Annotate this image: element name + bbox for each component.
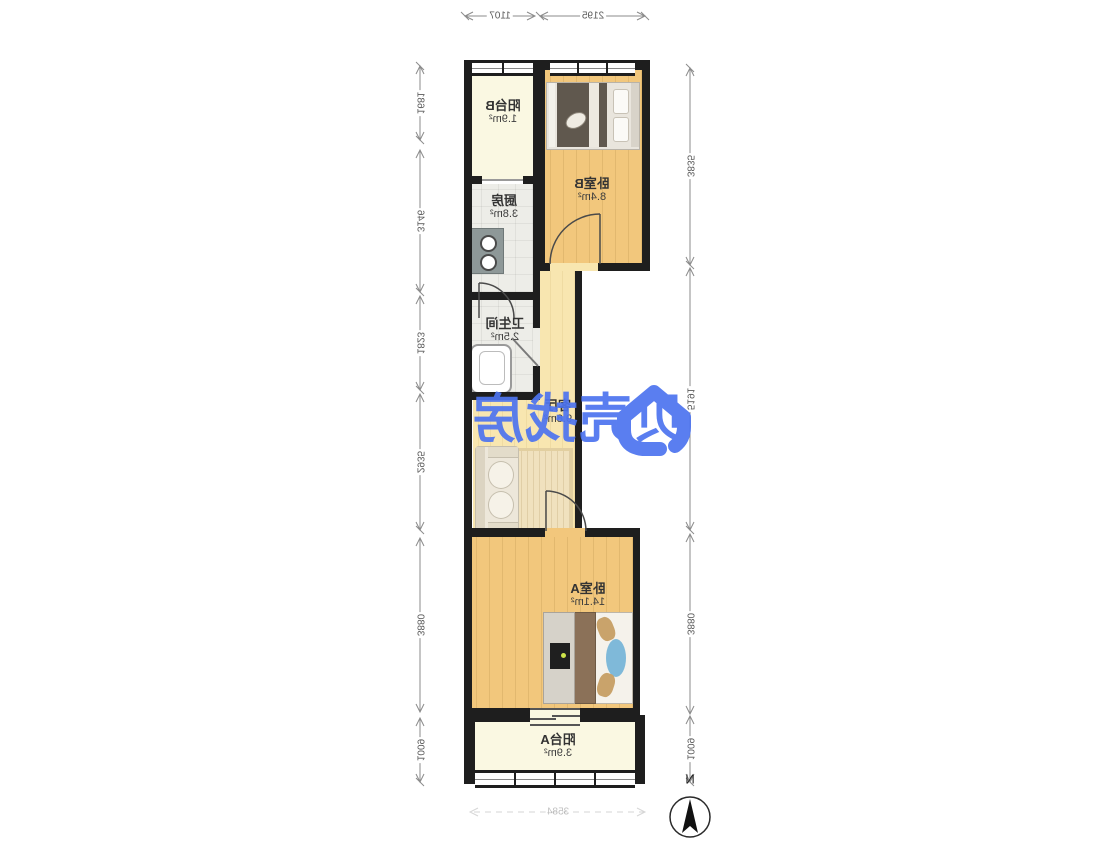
dim-right-1: 1681	[415, 90, 426, 116]
room-label-balcony-b: 阳台B1.9m²	[485, 98, 520, 126]
door-opening-balcony-a	[530, 708, 580, 726]
window-mullion	[594, 773, 596, 785]
bed-b-pillow	[613, 89, 629, 114]
room-label-bathroom: 卫生间2.5m²	[485, 316, 524, 344]
living-rug	[511, 448, 573, 536]
bed-b-headboard	[631, 83, 639, 147]
compass-north-label: N	[685, 772, 694, 787]
balcony-door-line	[530, 718, 556, 720]
wall-living-bottom-left	[585, 528, 640, 537]
window-mullion	[502, 63, 504, 73]
dim-bottom-1: 3584	[545, 807, 571, 818]
wall-balcony-a-right	[464, 715, 475, 778]
wall-living-bottom-right	[464, 528, 545, 537]
sofa-cushion	[488, 461, 514, 489]
dim-top-1: 2195	[580, 11, 606, 22]
wall-balcony-b-divider-stub	[523, 176, 533, 184]
bed-b-sheet	[549, 83, 555, 147]
window-mullion	[554, 773, 556, 785]
wall-left-bedroom-b	[642, 70, 650, 271]
wall-bedroom-b-bottom	[598, 263, 650, 271]
bedroom-b-window	[550, 60, 635, 76]
bed-b-runner	[589, 83, 599, 147]
dim-top-2: 1107	[487, 11, 513, 22]
window-mullion	[514, 773, 516, 785]
room-label-bedroom-a: 卧室A14.1m²	[570, 581, 605, 609]
watermark-text: 贝壳找房	[470, 383, 686, 457]
wall-balcony-b-divider-stub	[472, 176, 482, 184]
balcony-door-line	[552, 715, 580, 717]
window-mullion	[606, 63, 608, 73]
wall-bedroom-a-bottom-left	[580, 708, 640, 722]
bed-a	[595, 612, 633, 704]
dim-left-4: 1009	[685, 736, 696, 762]
wall-mid-vertical	[533, 60, 545, 263]
wall-kitchen-bottom	[464, 292, 540, 300]
sofa-back	[476, 447, 485, 531]
dim-left-3: 3880	[685, 611, 696, 637]
door-opening-bedroom-b	[550, 263, 598, 271]
dim-left-1: 3835	[685, 153, 696, 179]
bed-b	[546, 82, 640, 150]
wardrobe-a	[543, 612, 575, 704]
balcony-b-window	[472, 60, 533, 76]
room-label-bedroom-b: 卧室B8.4m²	[574, 176, 609, 204]
balcony-a-window	[475, 770, 635, 788]
floorplan-canvas: 卧室B8.4m² 阳台B1.9m² 厨房3.8m² 卫生间2.5m² 客厅9.8…	[0, 0, 1116, 843]
bathtub-inner	[479, 351, 505, 385]
dim-right-4: 2935	[415, 449, 426, 475]
dim-right-3: 1823	[415, 330, 426, 356]
compass-icon	[670, 797, 710, 837]
bed-a-pillow	[595, 671, 618, 699]
bed-a-frame	[574, 612, 596, 704]
wall-balcony-a-corner	[635, 770, 645, 784]
wall-balcony-a-left	[635, 715, 645, 778]
bed-a-quilt	[606, 639, 626, 677]
sofa-cushion	[488, 491, 514, 519]
kitchen-counter	[470, 228, 504, 274]
wall-bedroom-a-left	[633, 537, 640, 708]
stove-burner	[480, 235, 497, 252]
bed-b-pillow	[613, 117, 629, 142]
wall-balcony-a-corner	[464, 770, 475, 784]
dim-right-6: 1009	[415, 737, 426, 763]
corridor-floor	[540, 263, 575, 395]
tv-indicator	[561, 653, 566, 658]
door-opening-bedroom-a	[545, 528, 585, 537]
dim-right-2: 3146	[415, 208, 426, 234]
stove-burner	[480, 254, 497, 271]
sofa	[475, 446, 519, 534]
watermark: 贝壳找房	[470, 383, 692, 457]
room-label-balcony-a: 阳台A3.9m²	[540, 732, 575, 760]
window-mullion	[577, 63, 579, 73]
room-label-kitchen: 厨房3.8m²	[490, 193, 518, 221]
dim-right-5: 3880	[415, 612, 426, 638]
balcony-b-divider-line	[482, 179, 523, 181]
door-opening-bathroom	[533, 328, 540, 366]
tv-unit	[550, 643, 570, 669]
